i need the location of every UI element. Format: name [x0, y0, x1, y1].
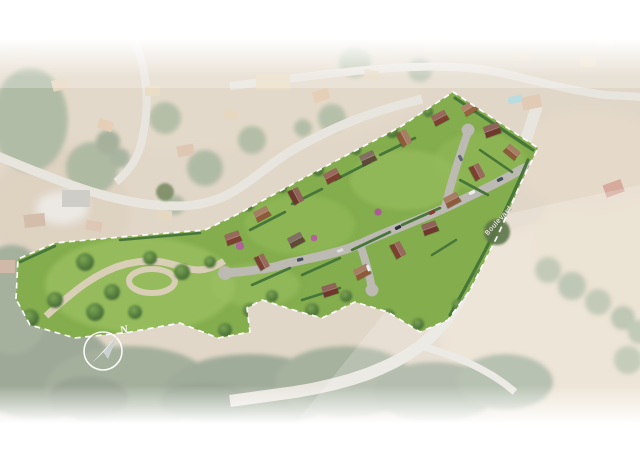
top-veil: [0, 38, 640, 88]
aerial-render: Boulevard N: [0, 0, 640, 470]
background-photo: Boulevard: [0, 25, 640, 440]
aerial-render-page: Boulevard N: [0, 0, 640, 470]
roadside-tree: [156, 183, 174, 201]
